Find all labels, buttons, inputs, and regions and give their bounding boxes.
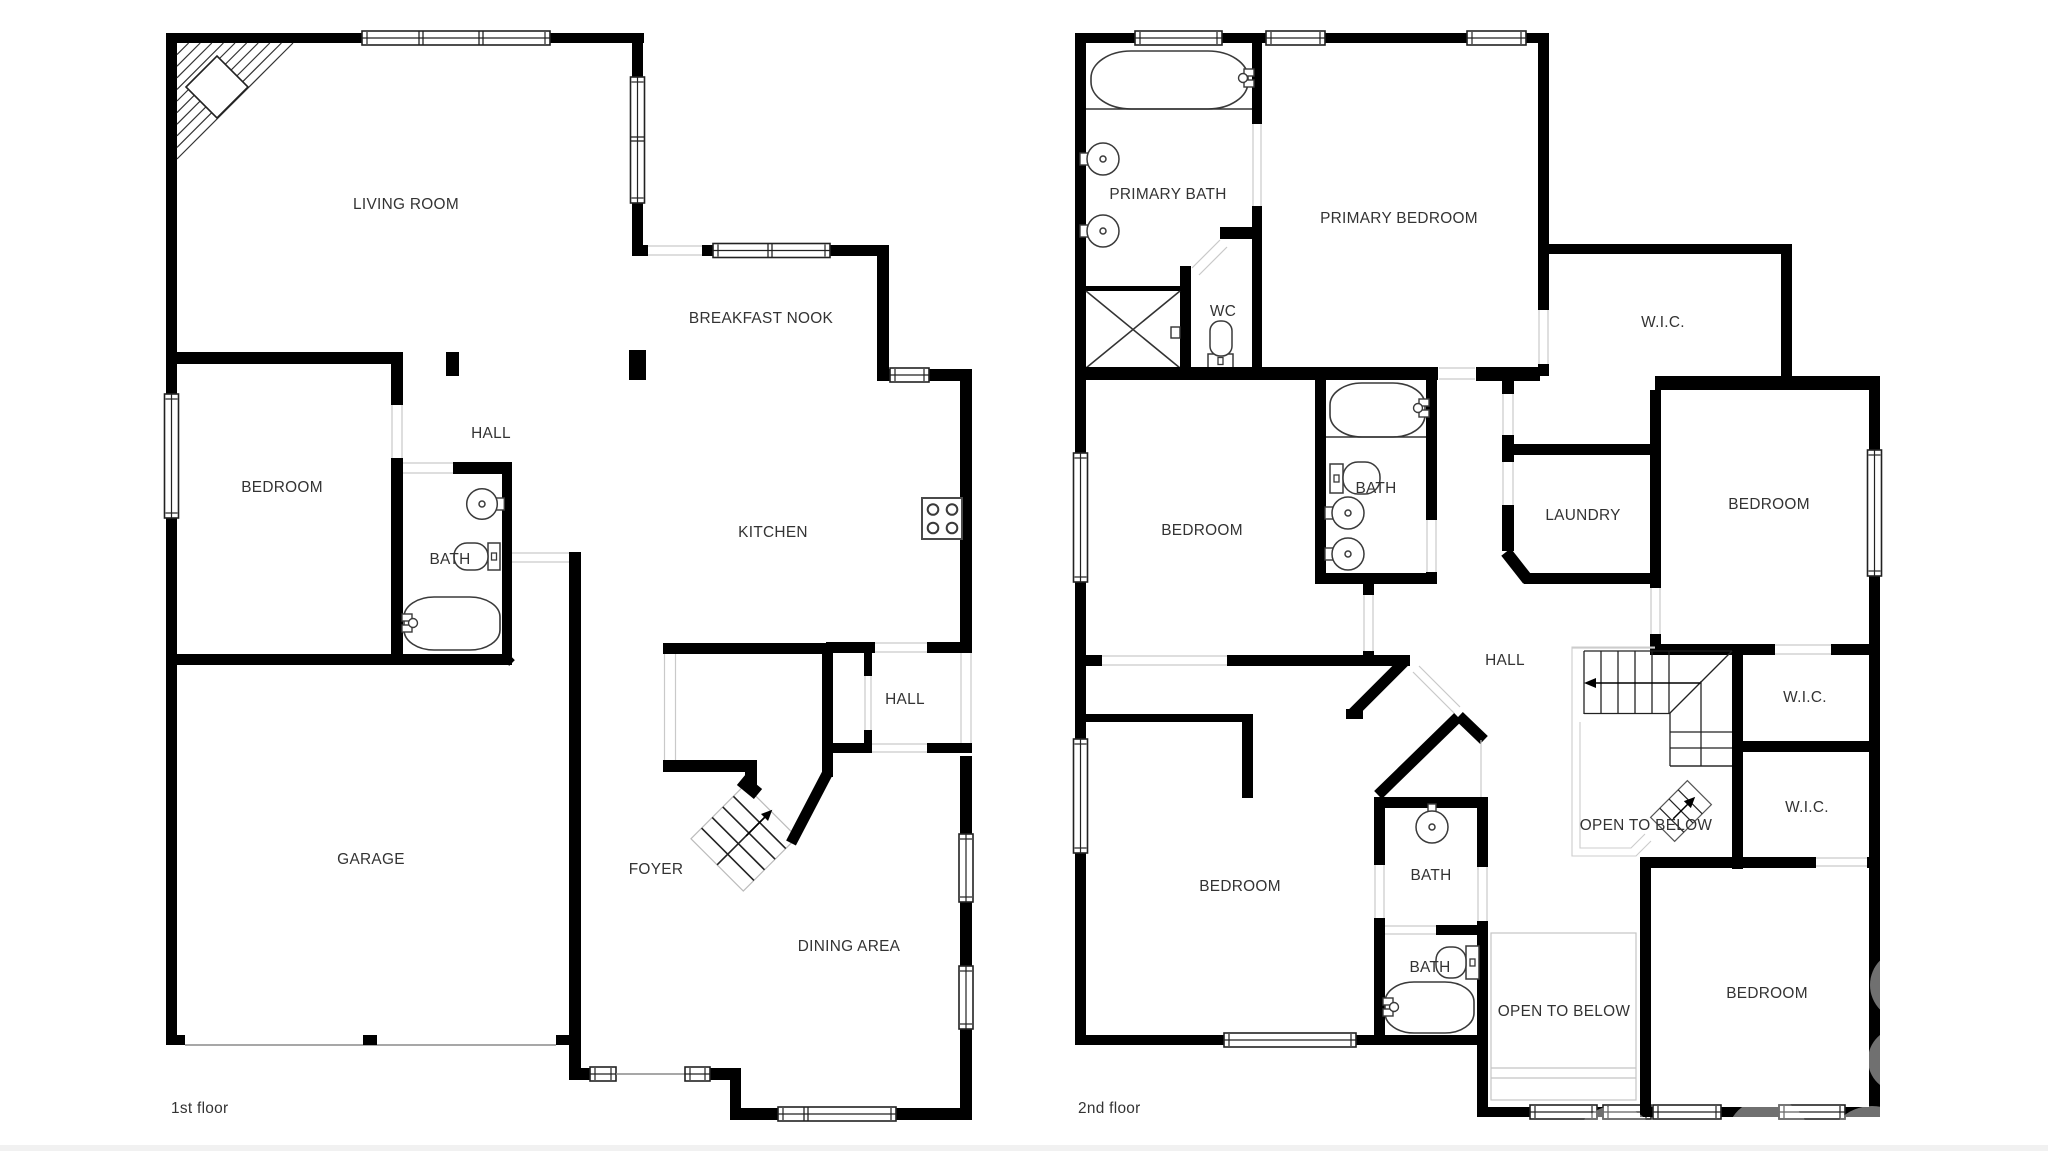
svg-text:WC: WC (1210, 303, 1236, 320)
svg-text:KITCHEN: KITCHEN (738, 524, 808, 541)
svg-text:1st floor: 1st floor (171, 1100, 228, 1117)
svg-text:DINING AREA: DINING AREA (798, 938, 901, 955)
svg-text:OPEN TO BELOW: OPEN TO BELOW (1498, 1003, 1631, 1020)
svg-text:HALL: HALL (885, 691, 925, 708)
svg-text:PRIMARY BATH: PRIMARY BATH (1109, 186, 1226, 203)
svg-text:BATH: BATH (1409, 959, 1450, 976)
svg-text:2nd floor: 2nd floor (1078, 1100, 1141, 1117)
svg-text:GARAGE: GARAGE (337, 851, 405, 868)
svg-text:FOYER: FOYER (629, 861, 684, 878)
svg-text:W.I.C.: W.I.C. (1641, 314, 1685, 331)
svg-text:W.I.C.: W.I.C. (1785, 799, 1829, 816)
svg-text:HALL: HALL (471, 425, 511, 442)
svg-text:BEDROOM: BEDROOM (241, 479, 323, 496)
svg-text:BREAKFAST NOOK: BREAKFAST NOOK (689, 310, 834, 327)
svg-text:HALL: HALL (1485, 652, 1525, 669)
svg-text:W.I.C.: W.I.C. (1783, 689, 1827, 706)
svg-text:BEDROOM: BEDROOM (1726, 985, 1808, 1002)
svg-text:LIVING ROOM: LIVING ROOM (353, 196, 459, 213)
svg-text:LAUNDRY: LAUNDRY (1545, 507, 1620, 524)
svg-text:BATH: BATH (1410, 867, 1451, 884)
svg-text:BEDROOM: BEDROOM (1728, 496, 1810, 513)
svg-text:PRIMARY BEDROOM: PRIMARY BEDROOM (1320, 210, 1478, 227)
svg-text:BATH: BATH (1355, 480, 1396, 497)
svg-text:BATH: BATH (429, 551, 470, 568)
svg-text:BEDROOM: BEDROOM (1199, 878, 1281, 895)
svg-text:OPEN TO BELOW: OPEN TO BELOW (1580, 817, 1713, 834)
svg-text:BEDROOM: BEDROOM (1161, 522, 1243, 539)
